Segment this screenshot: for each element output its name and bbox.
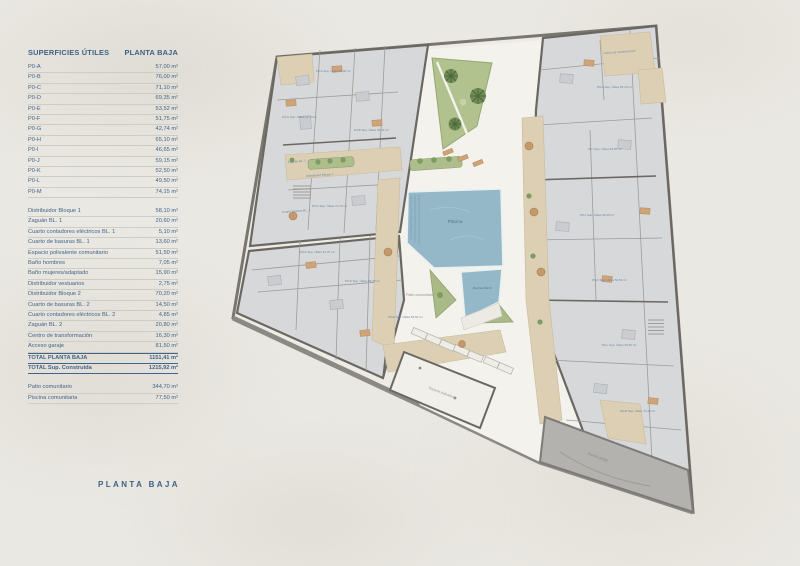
unit-area-label: P0-F Sup. Útiles 51,75 m² bbox=[300, 249, 335, 254]
unit-area-label: P0-C Sup. Útiles 71,10 m² bbox=[312, 203, 347, 208]
unit-area-label: P0-I Sup. Útiles 46,65 m² bbox=[588, 146, 622, 151]
unit-area-label: P0-B Sup. Útiles 76,00 m² bbox=[354, 127, 389, 132]
unit-area-label: P0-L Sup. Útiles 49,50 m² bbox=[602, 342, 636, 347]
unit-area-label: P0-D Sup. Útiles 69,35 m² bbox=[345, 278, 380, 283]
small-pool-label: Piscina infantil bbox=[473, 286, 492, 290]
pool-label: Piscina bbox=[448, 219, 463, 224]
unit-area-label: P0-J Sup. Útiles 59,15 m² bbox=[580, 212, 614, 217]
terrace-east-patch bbox=[638, 68, 666, 104]
main-pool: Piscina bbox=[407, 189, 503, 268]
unit-area-label: P0-H Sup. Útiles 65,10 m² bbox=[597, 84, 632, 89]
floorplan-drawing: Piscina Piscina infantil Patio comunitar… bbox=[0, 0, 800, 566]
patio-label: Patio comunitario bbox=[406, 293, 434, 297]
unit-area-label: P0-A Sup. Útiles 57,00 m² bbox=[316, 68, 351, 73]
plan-sheet: SUPERFICIES ÚTILES PLANTA BAJA P0-A57,00… bbox=[0, 0, 800, 566]
unit-area-label: P0-M Sup. Útiles 74,15 m² bbox=[620, 408, 655, 413]
unit-area-label: P0-K Sup. Útiles 52,50 m² bbox=[592, 277, 627, 282]
unit-area-label: P0-G Sup. Útiles 42,74 m² bbox=[282, 114, 317, 119]
unit-area-label: P0-E Sup. Útiles 53,52 m² bbox=[388, 314, 423, 319]
block-northwest bbox=[250, 45, 428, 246]
